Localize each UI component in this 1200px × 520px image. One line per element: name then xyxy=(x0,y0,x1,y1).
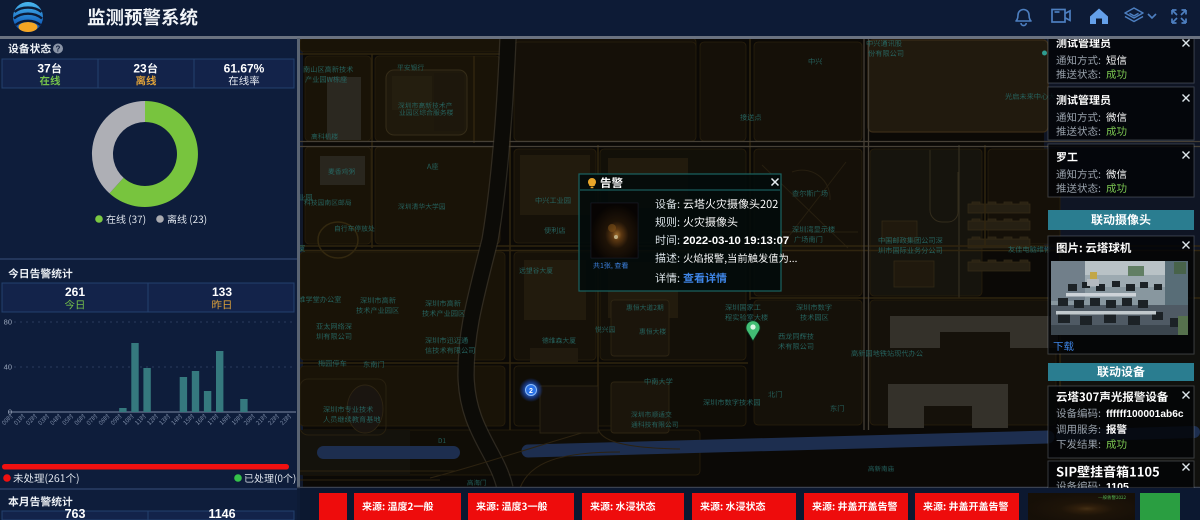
svg-text:?: ? xyxy=(56,45,61,54)
svg-text:2022-03-10 19:13:07: 2022-03-10 19:13:07 xyxy=(683,235,789,247)
svg-text:2: 2 xyxy=(529,388,533,395)
svg-text:763: 763 xyxy=(65,507,86,520)
svg-text:23: 23 xyxy=(133,62,147,76)
svg-text:80: 80 xyxy=(4,318,12,327)
svg-text:37: 37 xyxy=(37,62,51,76)
svg-text:ffffff100001ab6c: ffffff100001ab6c xyxy=(1106,409,1184,420)
svg-text:1146: 1146 xyxy=(208,507,235,520)
svg-text:61.67%: 61.67% xyxy=(224,62,265,76)
svg-text:40: 40 xyxy=(4,363,12,372)
svg-text:261: 261 xyxy=(65,285,85,299)
svg-text:133: 133 xyxy=(212,285,232,299)
